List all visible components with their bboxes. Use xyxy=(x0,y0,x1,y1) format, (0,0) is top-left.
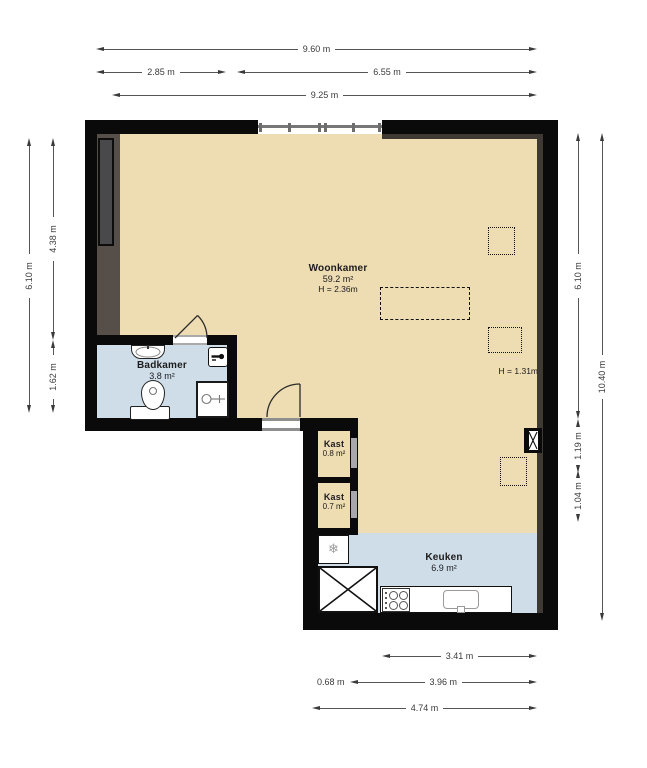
dim-right-total: 10.40 m xyxy=(596,133,608,621)
wall-bottom-lower xyxy=(303,613,558,630)
wall-closet-divider-2 xyxy=(318,528,358,535)
room-ceiling-height: H = 2.36m xyxy=(268,284,408,294)
dim-label: 0.68 m xyxy=(312,677,350,687)
dim-label: 6.10 m xyxy=(24,262,34,290)
dim-bottom-inner: 3.41 m xyxy=(382,650,537,662)
wall-left xyxy=(85,120,97,431)
low-ceiling-note: H = 1.31m xyxy=(470,366,538,376)
room-area: 3.8 m² xyxy=(118,371,206,381)
dim-right-lower: 1.04 m xyxy=(572,470,584,519)
room-label-kast-1: Kast 0.8 m² xyxy=(315,439,353,458)
stove-knob xyxy=(385,597,387,599)
dim-label: 3.41 m xyxy=(441,651,479,661)
room-name: Badkamer xyxy=(118,360,206,371)
shaft-icon xyxy=(318,566,378,613)
bathroom-door-opening xyxy=(173,335,207,345)
dim-label: 6.10 m xyxy=(573,262,583,290)
stove-burner xyxy=(389,601,398,610)
room-name: Kast xyxy=(315,439,353,449)
stove-burner xyxy=(389,591,398,600)
dim-label: 3.96 m xyxy=(425,677,463,687)
room-label-badkamer: Badkamer 3.8 m² xyxy=(118,360,206,381)
window-mullion xyxy=(288,123,291,132)
dim-label: 1.62 m xyxy=(48,363,58,391)
room-name: Keuken xyxy=(398,552,490,563)
room-area: 0.7 m² xyxy=(315,502,353,511)
room-name: Woonkamer xyxy=(268,263,408,274)
room-area: 0.8 m² xyxy=(315,449,353,458)
dim-right-mid: 1.19 m xyxy=(572,419,584,470)
roof-window-3 xyxy=(500,457,527,486)
stove-burner xyxy=(399,601,408,610)
dim-label: 2.85 m xyxy=(142,67,180,77)
dim-left-upper: 4.38 m xyxy=(47,138,59,340)
dim-label: 9.25 m xyxy=(306,90,344,100)
stove-knob xyxy=(385,592,387,594)
dim-top-right: 6.55 m xyxy=(237,66,537,78)
dim-top-inner: 9.25 m xyxy=(112,89,537,101)
window-top xyxy=(258,120,382,134)
window-mullion xyxy=(259,123,262,132)
fridge-icon: ❄ xyxy=(318,535,349,564)
dim-left-lower: 1.62 m xyxy=(47,340,59,413)
washbasin-icon xyxy=(131,345,165,359)
window-mullion xyxy=(378,123,381,132)
dim-label: 4.74 m xyxy=(406,703,444,713)
dim-top-left: 2.85 m xyxy=(96,66,226,78)
dim-label: 10.40 m xyxy=(597,361,607,394)
window-mullion xyxy=(318,123,321,132)
window-mullion xyxy=(324,123,327,132)
room-area: 59.2 m² xyxy=(268,274,408,284)
dim-left-total: 6.10 m xyxy=(23,138,35,413)
wall-top-left xyxy=(85,120,258,134)
room-label-woonkamer: Woonkamer 59.2 m² H = 2.36m xyxy=(268,263,408,294)
room-label-keuken: Keuken 6.9 m² xyxy=(398,552,490,573)
tap-icon xyxy=(208,347,228,367)
stove-knob xyxy=(385,602,387,604)
front-door-threshold xyxy=(262,418,300,431)
roof-window-2 xyxy=(488,327,522,353)
stove-burner xyxy=(399,591,408,600)
wall-top-right xyxy=(382,120,558,134)
floorplan-canvas: ❄ xyxy=(0,0,647,768)
roof-window-1 xyxy=(488,227,515,255)
dim-top-total: 9.60 m xyxy=(96,43,537,55)
dim-bottom-total: 4.74 m xyxy=(312,702,537,714)
dim-label: 6.55 m xyxy=(368,67,406,77)
dim-right-upper: 6.10 m xyxy=(572,133,584,419)
shower-icon xyxy=(196,381,229,418)
dim-label: 9.60 m xyxy=(298,44,336,54)
room-label-kast-2: Kast 0.7 m² xyxy=(315,492,353,511)
wall-bathroom-top xyxy=(97,335,237,345)
chimney-duct-box xyxy=(98,138,114,246)
room-name: Kast xyxy=(315,492,353,502)
dim-bottom-split: 0.68 m3.96 m xyxy=(312,676,537,688)
window-mullion xyxy=(352,123,355,132)
wall-shadow-top xyxy=(382,134,543,139)
dim-label: 1.19 m xyxy=(573,432,583,460)
dim-label: 1.04 m xyxy=(573,482,583,510)
stove-knob xyxy=(385,607,387,609)
dim-label: 4.38 m xyxy=(48,225,58,253)
sink-tap-icon xyxy=(457,606,465,613)
fridge-snowflake-glyph: ❄ xyxy=(328,542,339,557)
wall-right xyxy=(543,120,558,630)
duct-box-inner xyxy=(529,431,538,450)
room-area: 6.9 m² xyxy=(398,563,490,573)
stove-icon xyxy=(382,588,410,612)
